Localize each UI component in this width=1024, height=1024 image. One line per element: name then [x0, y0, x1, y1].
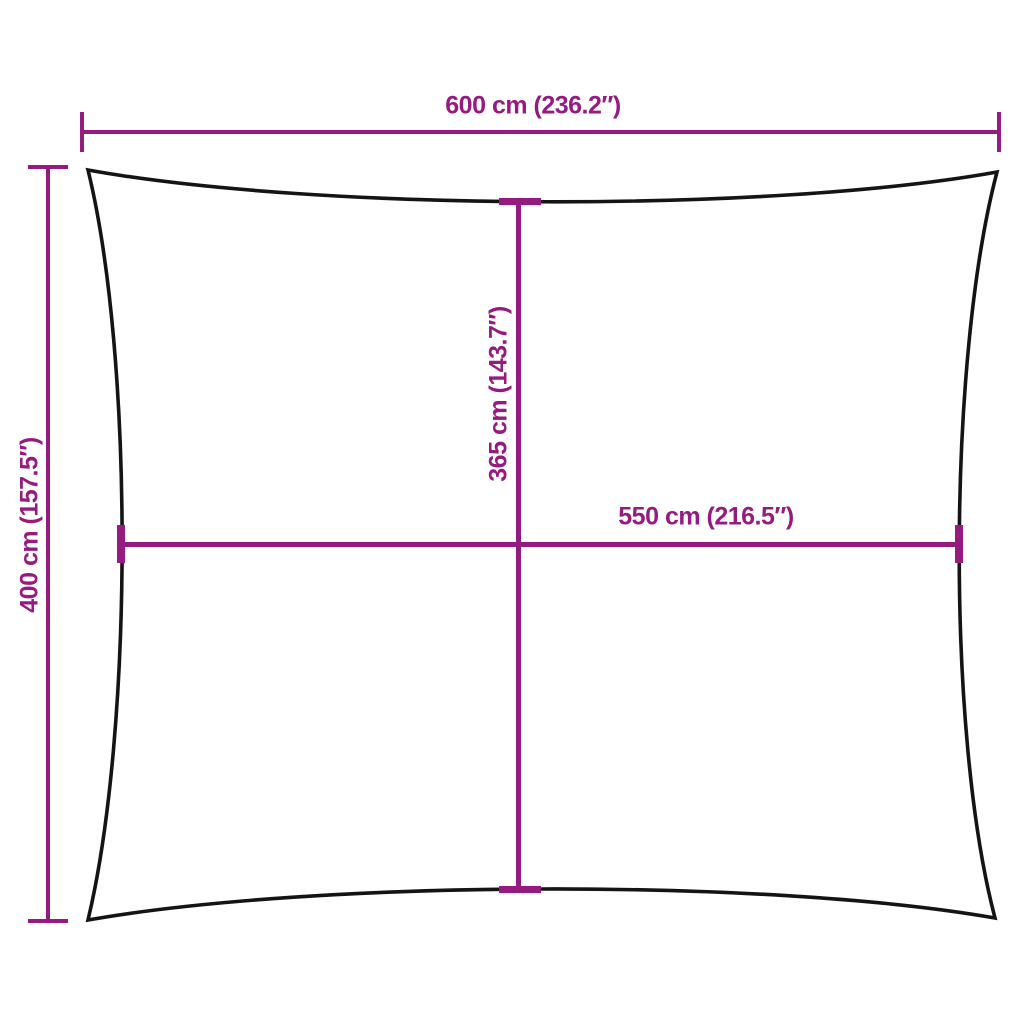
left-height-bottom-tick: [28, 919, 68, 923]
top-width-label: 600 cm (236.2″): [445, 92, 620, 121]
left-height-top-tick: [28, 165, 68, 169]
top-width-left-tick: [80, 112, 84, 152]
center-width-left-tick: [117, 525, 125, 563]
center-width-label: 550 cm (216.5″): [618, 503, 793, 532]
center-width-dimension-line: [122, 542, 960, 547]
center-width-right-tick: [955, 525, 963, 563]
top-width-right-tick: [997, 112, 1001, 152]
center-height-label: 365 cm (143.7″): [485, 306, 514, 481]
center-height-top-tick: [499, 198, 541, 205]
center-height-bottom-tick: [499, 886, 541, 893]
left-height-label: 400 cm (157.5″): [16, 437, 45, 612]
sail-shape: [0, 0, 1024, 1024]
left-height-dimension-line: [46, 167, 50, 921]
product-dimension-diagram: 600 cm (236.2″) 400 cm (157.5″) 365 cm (…: [0, 0, 1024, 1024]
top-width-dimension-line: [82, 130, 999, 134]
